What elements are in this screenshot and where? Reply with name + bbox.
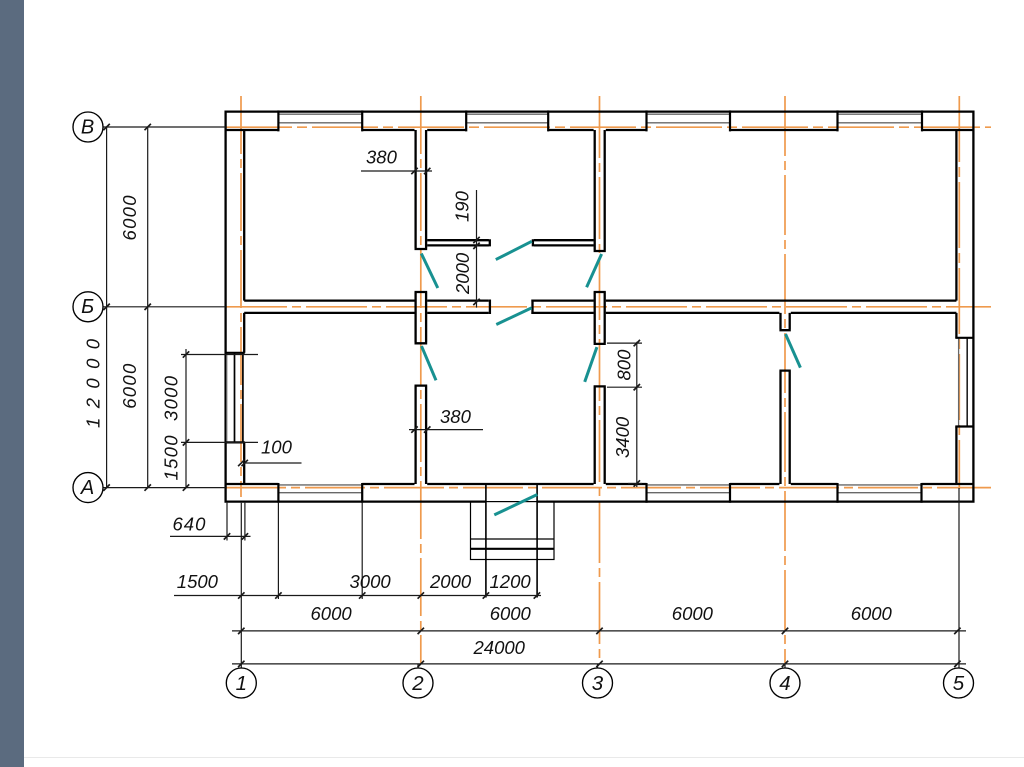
svg-text:100: 100 [261,437,293,458]
svg-text:6000: 6000 [119,194,140,240]
svg-text:В: В [81,116,94,138]
svg-text:380: 380 [366,147,398,168]
svg-text:А: А [80,477,94,499]
svg-text:4: 4 [779,672,790,695]
svg-text:640: 640 [173,514,207,535]
svg-text:6000: 6000 [119,362,140,408]
svg-text:12000: 12000 [82,330,103,428]
svg-text:24000: 24000 [473,637,526,658]
svg-text:3000: 3000 [161,375,182,421]
svg-text:5: 5 [953,672,965,695]
svg-text:3: 3 [592,672,604,695]
svg-text:1500: 1500 [161,434,182,480]
svg-text:2000: 2000 [429,571,472,592]
svg-text:1: 1 [236,672,247,695]
svg-text:3000: 3000 [350,571,392,592]
svg-text:1500: 1500 [177,571,219,592]
svg-text:Б: Б [81,296,94,318]
svg-text:380: 380 [440,406,472,427]
svg-text:6000: 6000 [311,603,353,624]
svg-text:1200: 1200 [490,571,532,592]
svg-text:2000: 2000 [452,252,473,295]
svg-text:6000: 6000 [851,603,893,624]
svg-text:6000: 6000 [672,603,714,624]
svg-text:190: 190 [452,190,473,222]
svg-text:6000: 6000 [490,603,532,624]
svg-text:3400: 3400 [612,416,633,458]
svg-text:800: 800 [614,349,635,381]
svg-text:2: 2 [411,672,424,695]
